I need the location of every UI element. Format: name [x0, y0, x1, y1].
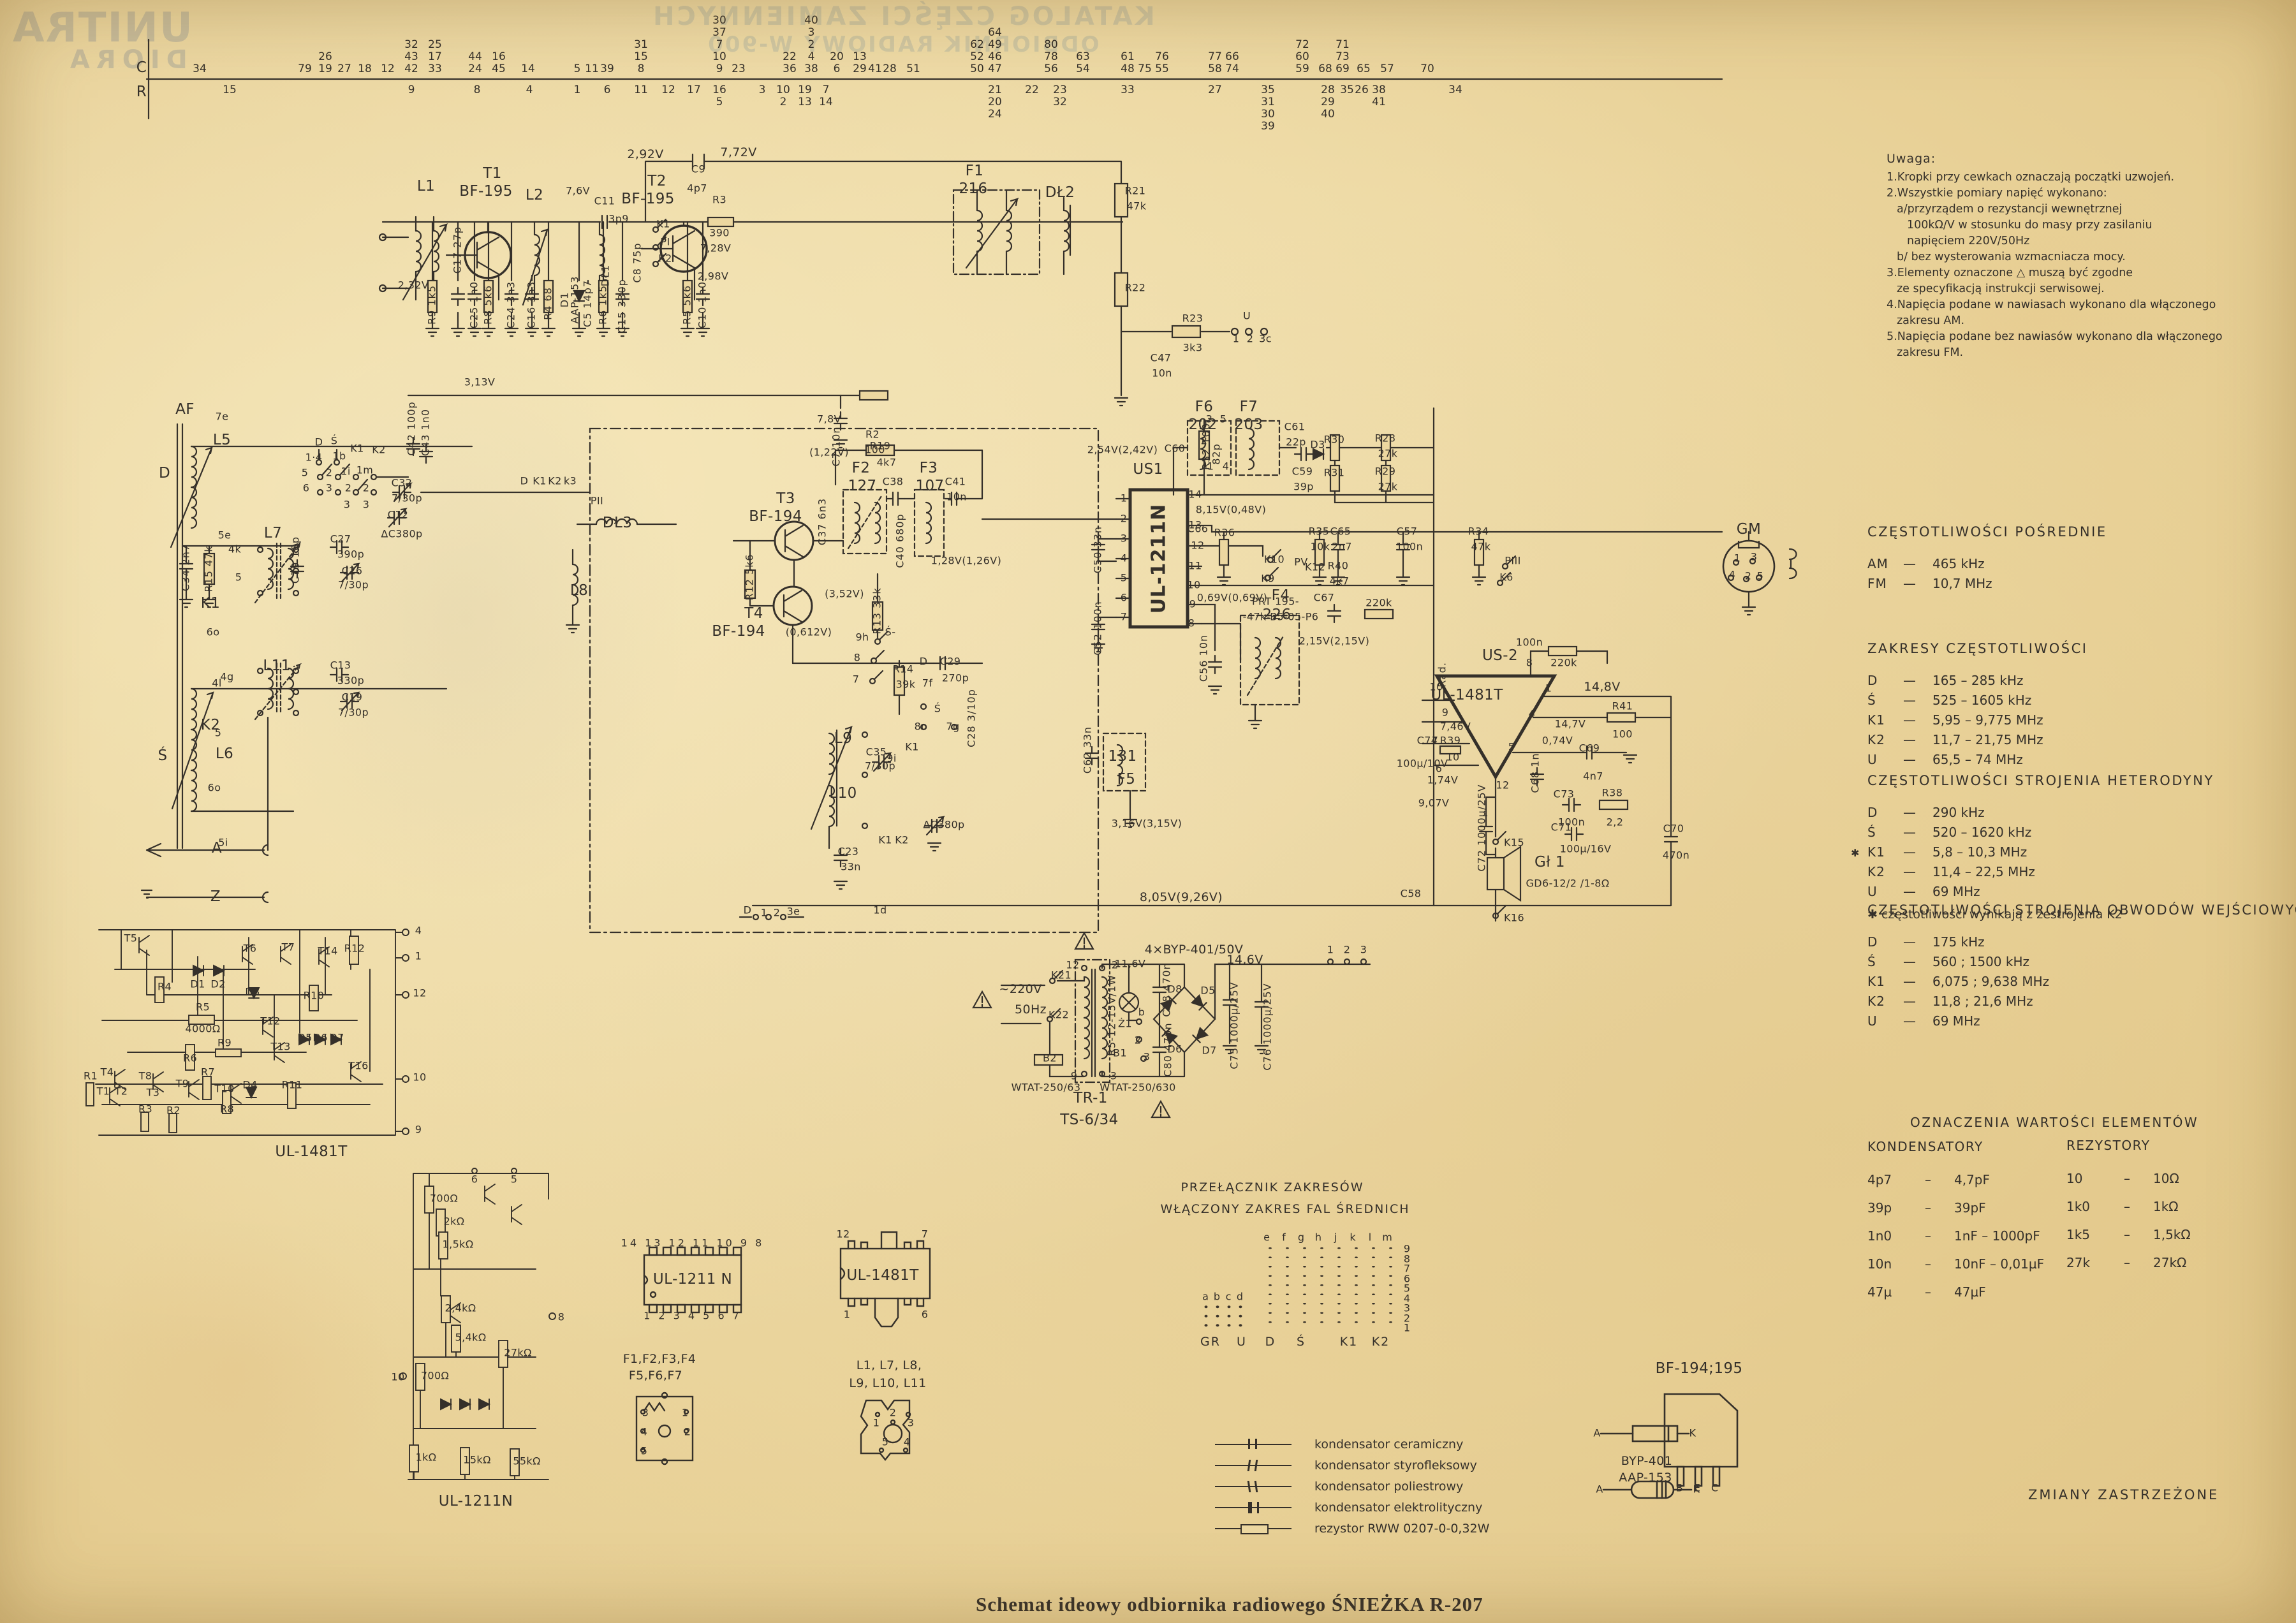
schematic-label: 12: [1496, 781, 1509, 791]
panel-row: Ś—525 – 1605 kHz: [1867, 693, 2087, 712]
schematic-label: C: [136, 60, 147, 75]
panel-rows: AM—465 kHzFM—10,7 MHz: [1867, 556, 2107, 596]
schematic-label: B2: [1043, 1054, 1057, 1064]
schematic-label: 6: [1121, 593, 1128, 604]
schematic-label: 5: [882, 1437, 889, 1448]
schematic-label: 12: [1066, 960, 1079, 971]
schematic-label: 7/30p: [338, 580, 369, 591]
schematic-label: R7: [201, 1068, 215, 1078]
ruler-number-group: 23 32: [1053, 84, 1067, 108]
schematic-label: 2,92V: [627, 149, 663, 161]
dash: —: [1903, 825, 1932, 840]
schematic-label: 2: [1121, 514, 1128, 525]
schematic-label: 5: [1508, 742, 1515, 753]
schematic-label: D2: [210, 980, 225, 990]
schematic-label: L8: [570, 583, 588, 598]
schematic-label: 107: [915, 478, 944, 494]
schematic-label: C5 14p7: [583, 280, 594, 327]
dash: —: [1903, 974, 1932, 989]
schematic-label: R9: [217, 1038, 232, 1049]
schematic-label: R41: [1612, 701, 1633, 712]
ruler-number-group: 16 5: [712, 84, 726, 108]
ruler-number-group: 75: [1138, 63, 1152, 75]
schematic-label: 5: [511, 1175, 518, 1186]
panel-rows: D—290 kHzŚ—520 – 1620 kHz✱K1—5,8 – 10,3 …: [1867, 805, 2214, 904]
ruler-number-group: 30 37 7 10 9: [712, 15, 726, 75]
schematic-label: K2: [548, 476, 561, 487]
band-key: Ś: [1867, 693, 1903, 708]
switch-contact-grid: [1262, 1244, 1399, 1325]
band-value: 5,95 – 9,775 MHz: [1932, 712, 2043, 728]
schematic-label: 4: [641, 1427, 648, 1438]
schematic-label: 1d: [873, 906, 887, 916]
schematic-label: 11: [1188, 561, 1202, 572]
resistors-legend: REZYSTORY 10–10Ω1k0–1kΩ1k5–1,5kΩ27k–27kΩ: [2066, 1138, 2232, 1283]
res-rows: 10–10Ω1k0–1kΩ1k5–1,5kΩ27k–27kΩ: [2066, 1171, 2232, 1283]
note-line: 1.Kropki przy cewkach oznaczają początki…: [1887, 170, 2244, 186]
symbol-legend-label: kondensator styrofleksowy: [1314, 1458, 1477, 1472]
ruler-number-group: 15: [223, 84, 237, 96]
symbol-legend-row: kondensator poliestrowy: [1215, 1476, 1489, 1497]
schematic-label: 3: [1110, 1071, 1117, 1082]
schematic-label: F1: [966, 163, 984, 179]
note-line: 3.Elementy oznaczone △ muszą być zgodne: [1887, 265, 2244, 281]
schematic-label: UL-1211N: [439, 1494, 513, 1509]
ruler-number-group: 26: [1355, 84, 1369, 96]
schematic-label: 9: [1071, 1071, 1078, 1082]
schematic-label: 7/30p: [392, 494, 422, 504]
schematic-label: 7e: [216, 412, 229, 423]
schematic-label: L11: [263, 658, 290, 673]
schematic-label: AAP-153: [1619, 1472, 1672, 1485]
schematic-label: D6: [1167, 1045, 1182, 1055]
schematic-label: 6: [922, 1310, 929, 1321]
schematic-label: R34: [1468, 527, 1489, 538]
schematic-label: R21: [1125, 186, 1146, 197]
ruler-number-group: 16 45: [492, 51, 506, 75]
schematic-label: 1b: [332, 452, 346, 462]
ruler-number-group: 7 14: [819, 84, 833, 108]
schematic-label: C67: [1314, 593, 1335, 604]
panel-rows: D—165 – 285 kHzŚ—525 – 1605 kHzK1—5,95 –…: [1867, 673, 2087, 772]
band-value: 520 – 1620 kHz: [1932, 825, 2031, 840]
sty-symbol-icon: [1215, 1458, 1291, 1472]
schematic-label: T2: [115, 1087, 128, 1098]
schematic-label: 15kΩ: [463, 1455, 490, 1466]
ruler-number-group: 26 19: [318, 51, 332, 75]
switch-column-letter: m: [1382, 1231, 1392, 1244]
schematic-label: F1,F2,F3,F4: [623, 1353, 696, 1366]
schematic-label: PII: [591, 496, 603, 507]
schematic-label: D3: [1310, 440, 1325, 451]
dash: —: [1903, 1013, 1932, 1029]
schematic-label: 1: [1734, 554, 1741, 564]
schematic-label: L10: [829, 786, 857, 801]
schematic-label: D: [159, 466, 170, 481]
schematic-label: D7: [1202, 1046, 1216, 1057]
panel-row: K2—11,4 – 22,5 MHz: [1867, 864, 2214, 884]
schematic-label: C62 33n: [1083, 726, 1094, 774]
values-legend-title-wrap: OZNACZENIA WARTOŚCI ELEMENTÓW: [1910, 1115, 2198, 1130]
schematic-label: 47k: [1127, 202, 1147, 212]
schematic-label: 8: [1188, 619, 1195, 629]
schematic-label: 1,74V: [1427, 775, 1459, 786]
schematic-label: 3c: [1259, 334, 1272, 345]
schematic-label: K1: [201, 596, 221, 611]
ruler-number-group: 34: [1448, 84, 1462, 96]
schematic-label: R2: [865, 430, 879, 441]
schematic-label: 5e: [218, 531, 232, 541]
note-line: b/ bez wysterowania wzmacniacza mocy.: [1887, 249, 2244, 265]
schematic-label: C38: [883, 477, 904, 488]
dash: —: [1903, 934, 1932, 950]
value-legend-row: 1n0–1nF – 1000pF: [1867, 1228, 2059, 1256]
schematic-label: ΔC380p: [923, 820, 964, 831]
schematic-label: 2,4kΩ: [445, 1304, 476, 1314]
panel-row: K1—5,95 – 9,775 MHz: [1867, 712, 2087, 732]
dash: —: [1903, 693, 1932, 708]
schematic-label: C28 3/10p: [967, 689, 978, 747]
band-value: 11,7 – 21,75 MHz: [1932, 732, 2043, 747]
ruler-number-group: 76 55: [1155, 51, 1169, 75]
band-key: D: [1867, 934, 1903, 950]
schematic-label: 5: [1121, 573, 1128, 584]
value-code: 1k5: [2066, 1227, 2124, 1255]
schematic-label: 100µ/10V: [1397, 759, 1448, 770]
switch-column-letter: h: [1315, 1231, 1321, 1244]
schematic-label: K2: [372, 445, 385, 456]
schematic-label: 8: [854, 653, 861, 664]
value-meaning: 4,7pF: [1954, 1172, 1990, 1200]
schematic-label: 1: [682, 1408, 689, 1419]
ruler-number-group: 4: [526, 84, 533, 96]
switch-band-label: D: [1265, 1335, 1276, 1349]
schematic-label: 2: [1135, 1036, 1142, 1047]
schematic-label: K9: [1261, 574, 1274, 585]
schematic-label: C24 3n3: [506, 281, 517, 328]
capacitors-header: KONDENSATORY: [1867, 1139, 2059, 1154]
schematic-label: 4g: [220, 672, 233, 683]
dash: –: [1925, 1172, 1954, 1200]
schematic-label: BF-194;195: [1656, 1361, 1743, 1376]
dash: —: [1903, 844, 1932, 860]
band-value: 290 kHz: [1932, 805, 1985, 820]
schematic-label: 390p: [337, 550, 364, 561]
schematic-label: 202: [1188, 417, 1217, 432]
switch-contact-grid-abcd: [1200, 1302, 1249, 1330]
schematic-label: 9: [415, 1125, 422, 1136]
value-code: 10n: [1867, 1256, 1925, 1284]
schematic-label: 330p: [337, 676, 364, 687]
ruler-number-group: 41: [868, 63, 882, 75]
schematic-label: R12: [344, 944, 365, 955]
schematic-label: C29: [940, 657, 961, 668]
value-meaning: 10nF – 0,01µF: [1954, 1256, 2044, 1284]
schematic-label: 2,54V(2,42V): [1087, 445, 1158, 456]
schematic-label: 4: [415, 926, 422, 937]
schematic-label: C69: [1579, 744, 1600, 754]
band-ranges-panel: ZAKRESY CZĘSTOTLIWOŚCI D—165 – 285 kHzŚ—…: [1867, 641, 2087, 772]
schematic-label: C17 27p: [453, 226, 464, 274]
note-line: 100kΩ/V w stosunku do masy przy zasilani…: [1887, 217, 2244, 233]
ruler-number-group: 66 74: [1225, 51, 1239, 75]
pol-symbol-icon: [1215, 1480, 1291, 1494]
band-value: 560 ; 1500 kHz: [1932, 954, 2029, 969]
band-key: K2: [1867, 864, 1903, 879]
dash: —: [1903, 884, 1932, 899]
schematic-label: ~220V: [999, 983, 1041, 996]
schematic-label: BF-194: [712, 624, 765, 639]
schematic-label: 7: [853, 675, 860, 686]
panel-row: D—175 kHz: [1867, 934, 2296, 954]
panel-row: Ś—520 – 1620 kHz: [1867, 825, 2214, 844]
schematic-label: R31: [1324, 468, 1345, 479]
value-legend-row: 10–10Ω: [2066, 1171, 2232, 1199]
schematic-label: C58: [1401, 889, 1422, 900]
ruler-number-group: 80 78 56: [1044, 39, 1058, 75]
switch-column-letter: b: [1214, 1291, 1220, 1303]
schematic-label: 100: [1612, 730, 1633, 740]
schematic-label: L1: [417, 179, 435, 194]
footnote-marker: ✱: [1851, 847, 1867, 859]
value-code: 1n0: [1867, 1228, 1925, 1256]
band-value: 11,4 – 22,5 MHz: [1932, 864, 2035, 879]
schematic-label: D1: [190, 980, 205, 990]
schematic-label: K22: [1049, 1010, 1069, 1021]
symbol-legend-label: kondensator elektrolityczny: [1314, 1501, 1482, 1515]
schematic-label: L1, L7, L8,: [857, 1360, 922, 1372]
schematic-label: C19: [342, 693, 363, 703]
schematic-label: C27: [330, 534, 351, 545]
band-value: 175 kHz: [1932, 934, 1985, 950]
switch-band-label: GR: [1200, 1335, 1221, 1349]
schematic-label: R22: [1125, 283, 1146, 294]
schematic-label: C34 2n7: [181, 544, 192, 591]
input-circuits-panel: CZĘSTOTLIWOŚCI STROJENIA OBWODÓW WEJŚCIO…: [1867, 902, 2296, 1033]
schematic-label: R6 1k5: [598, 285, 609, 325]
schematic-label: D6: [313, 1033, 327, 1044]
schematic-label: 1: [873, 1418, 880, 1429]
schematic-label: R36: [1214, 528, 1235, 539]
ruler-number-group: 18: [358, 63, 372, 75]
value-code: 10: [2066, 1171, 2124, 1199]
value-code: 4p7: [1867, 1172, 1925, 1200]
schematic-label: (3,52V): [825, 589, 864, 600]
schematic-label: DŁ3: [603, 515, 632, 531]
band-value: 165 – 285 kHz: [1932, 673, 2024, 688]
schematic-label: 12: [413, 988, 426, 999]
schematic-label: 470n: [1663, 851, 1689, 862]
schematic-label: 50Hz: [1015, 1004, 1047, 1017]
schematic-label: D5: [297, 1033, 312, 1044]
band-key: K1: [1867, 844, 1903, 860]
ruler-number-group: 77 58: [1208, 51, 1222, 75]
schematic-label: R15 47k: [204, 545, 215, 592]
band-key: FM: [1867, 576, 1903, 591]
ruler-number-group: 39: [600, 63, 614, 75]
schematic-label: C60: [1165, 444, 1186, 455]
dash: —: [1903, 556, 1932, 571]
value-legend-row: 1k0–1kΩ: [2066, 1199, 2232, 1227]
schematic-label: 3: [1144, 1052, 1151, 1063]
schematic-label: K: [1693, 1485, 1700, 1495]
schematic-label: 4l: [212, 679, 221, 689]
schematic-label: US-2: [1482, 648, 1518, 663]
ruler-number-group: 27: [337, 63, 351, 75]
heterodyne-panel: CZĘSTOTLIWOŚCI STROJENIA HETERODYNY D—29…: [1867, 773, 2214, 922]
sheet-title: Schemat ideowy odbiornika radiowego ŚNIE…: [976, 1593, 1473, 1616]
schematic-label: WTAT-250/63: [1012, 1083, 1081, 1094]
value-legend-row: 10n–10nF – 0,01µF: [1867, 1256, 2059, 1284]
schematic-label: T1: [483, 166, 501, 181]
schematic-label: GM: [1737, 522, 1761, 537]
schematic-label: 2kΩ: [444, 1217, 465, 1228]
ruler-number-group: 35 31 30 39: [1261, 84, 1275, 133]
notes-title: Uwaga:: [1887, 152, 2244, 166]
schematic-label: K10: [1264, 555, 1284, 566]
band-key: K1: [1867, 712, 1903, 728]
schematic-label: 6o: [208, 783, 221, 794]
ruler-number-group: 28: [883, 63, 897, 75]
band-value: 6,075 ; 9,638 MHz: [1932, 974, 2049, 989]
ruler-number-group: 27: [1208, 84, 1222, 96]
schematic-label: 14,7V: [1555, 719, 1586, 730]
ruler-number-group: 21 20 24: [988, 84, 1002, 121]
schematic-label: 4: [904, 1437, 911, 1448]
ruler-number-group: 31 15 8: [634, 39, 648, 75]
schematic-label: R4: [158, 982, 172, 993]
schematic-label: C59: [1292, 467, 1313, 478]
schematic-label: C16 3n3: [527, 281, 538, 328]
schematic-label: 14,6V: [1226, 954, 1263, 967]
schematic-label: D: [315, 437, 323, 448]
values-legend-title: OZNACZENIA WARTOŚCI ELEMENTÓW: [1910, 1115, 2198, 1130]
value-meaning: 10Ω: [2153, 1171, 2179, 1199]
schematic-label: ΔC380p: [381, 529, 422, 540]
schematic-label: F6: [1195, 399, 1214, 415]
band-value: 65,5 – 74 MHz: [1932, 752, 2023, 767]
schematic-label: Gł 1: [1534, 855, 1565, 870]
schematic-label: 2,2: [1607, 818, 1624, 828]
schematic-label: 6o: [207, 628, 220, 638]
schematic-label: U: [1243, 311, 1251, 322]
notes-panel: Uwaga: 1.Kropki przy cewkach oznaczają p…: [1887, 152, 2244, 361]
schematic-label: 7g: [946, 722, 959, 733]
schematic-label: 2,15V(2,15V): [1299, 636, 1369, 647]
schematic-label: C35: [866, 747, 887, 758]
schematic-label: R12 5k6: [745, 554, 756, 600]
ruler-number-group: 63 54: [1076, 51, 1090, 75]
note-line: ze specyfikacją instrukcji serwisowej.: [1887, 281, 2244, 297]
schematic-label: 2: [1344, 945, 1351, 956]
switch-column-letter: e: [1263, 1231, 1270, 1244]
dash: –: [1925, 1228, 1954, 1256]
value-legend-row: 47µ–47µF: [1867, 1284, 2059, 1312]
value-code: 27k: [2066, 1255, 2124, 1283]
schematic-sheet: UNITRA DIORA KATALOG CZĘŚCI ZAMIENNYCH O…: [0, 0, 2296, 1623]
schematic-label: C79 18p: [291, 536, 302, 584]
schematic-label: 4: [1729, 570, 1736, 581]
schematic-label: 8,05V(9,26V): [1140, 892, 1223, 904]
ele-symbol-icon: [1215, 1501, 1291, 1515]
schematic-label: R11: [282, 1080, 303, 1091]
schematic-label: 1m: [357, 466, 374, 476]
symbol-legend-label: kondensator ceramiczny: [1314, 1437, 1463, 1451]
ruler-number-group: 17: [687, 84, 701, 96]
schematic-label: 10n: [946, 492, 967, 503]
value-meaning: 39pF: [1954, 1200, 1986, 1228]
schematic-label: 8,15V(0,48V): [1196, 505, 1266, 516]
dash: –: [2124, 1255, 2153, 1283]
ruler-number-group: 23: [732, 63, 746, 75]
ruler-number-group: 10 2: [776, 84, 790, 108]
ruler-number-group: 13 29: [853, 51, 867, 75]
ruler-number-group: 12: [661, 84, 675, 96]
schematic-label: 4n7: [1583, 772, 1603, 782]
schematic-label: 220k: [1550, 658, 1577, 669]
schematic-label: 1: [415, 951, 422, 962]
dash: –: [2124, 1171, 2153, 1199]
schematic-label: 5: [1757, 571, 1764, 582]
value-meaning: 1kΩ: [2153, 1199, 2179, 1227]
schematic-label: 1: [761, 908, 768, 919]
schematic-label: K12: [1305, 562, 1325, 573]
schematic-label: 1: [1207, 462, 1214, 473]
schematic-label: D5: [1200, 986, 1215, 997]
ruler-number-group: 38 41: [1372, 84, 1386, 108]
schematic-label: C76 1000µ/25V: [1263, 983, 1274, 1070]
schematic-label: K21: [1051, 971, 1071, 981]
schematic-label: 11,6V: [1115, 959, 1146, 970]
schematic-label: 3,16V(3,15V): [1112, 819, 1182, 830]
schematic-label: 1 2 3 4 5 6 7: [644, 1311, 742, 1322]
schematic-label: 4: [1121, 554, 1128, 564]
schematic-label: R3: [712, 195, 726, 206]
schematic-label: C32: [392, 478, 413, 489]
panel-row: AM—465 kHz: [1867, 556, 2107, 576]
schematic-label: 3e: [787, 907, 800, 918]
panel-row: K1—6,075 ; 9,638 MHz: [1867, 974, 2296, 994]
schematic-label: b: [1138, 1008, 1145, 1018]
switch-band-label: U: [1237, 1335, 1247, 1349]
schematic-label: C71: [1551, 823, 1572, 834]
schematic-label: 14,8V: [1584, 681, 1620, 694]
schematic-label: C26: [342, 566, 363, 577]
switch-row-number: 1: [1404, 1322, 1410, 1334]
schematic-label: 2: [1247, 334, 1254, 345]
schematic-label: 700Ω: [421, 1371, 449, 1382]
switch-band-label: Ś: [1297, 1335, 1306, 1349]
schematic-label: 3: [326, 483, 333, 494]
schematic-label: C37 6n3: [818, 498, 828, 545]
dash: —: [1903, 954, 1932, 969]
schematic-label: 7: [1121, 612, 1128, 623]
schematic-label: 1,5kΩ: [443, 1240, 474, 1251]
schematic-label: R2: [166, 1106, 180, 1117]
band-value: 10,7 MHz: [1932, 576, 1992, 591]
dash: –: [2124, 1199, 2153, 1227]
schematic-label: 10: [413, 1073, 426, 1083]
ruler-number-group: 11: [585, 63, 599, 75]
switch-title1: PRZEŁĄCZNIK ZAKRESÓW: [1181, 1180, 1364, 1194]
schematic-label: T3: [776, 491, 795, 506]
panel-title: ZAKRESY CZĘSTOTLIWOŚCI: [1867, 641, 2087, 656]
switch-column-letter: j: [1334, 1231, 1337, 1244]
schematic-label: UL-1211 N: [653, 1272, 732, 1287]
symbol-legend-row: kondensator ceramiczny: [1215, 1434, 1489, 1455]
schematic-label: 7,6V: [566, 186, 590, 197]
schematic-label: AAP-153: [570, 276, 581, 324]
